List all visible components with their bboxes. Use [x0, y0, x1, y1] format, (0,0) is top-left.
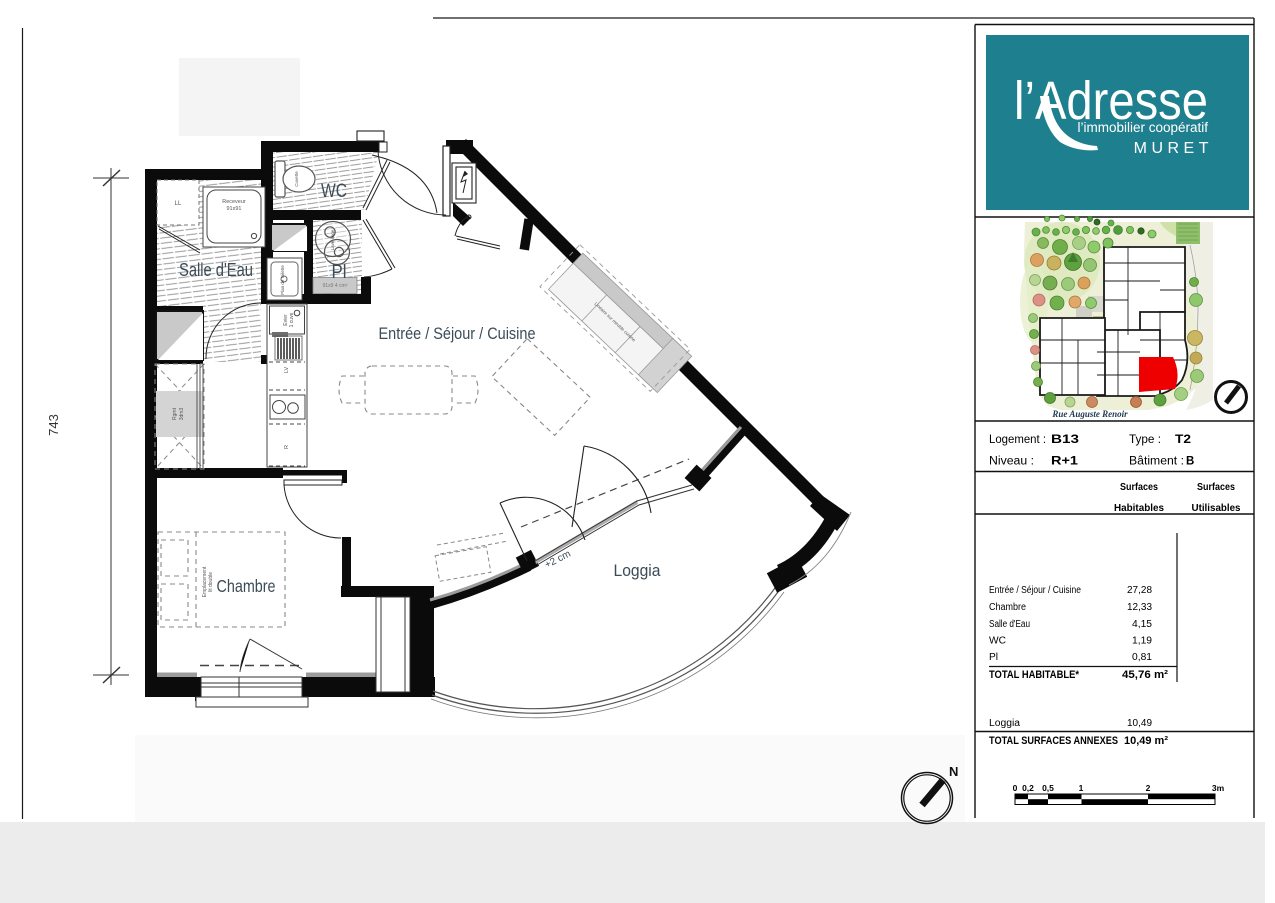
svg-text:0: 0: [1013, 783, 1018, 793]
svg-text:LV: LV: [284, 367, 290, 374]
svg-text:Entrée / Séjour / Cuisine: Entrée / Séjour / Cuisine: [989, 585, 1081, 596]
svg-text:WC: WC: [321, 181, 347, 202]
svg-text:3dm3: 3dm3: [179, 408, 185, 421]
svg-text:T2: T2: [1175, 434, 1191, 446]
svg-text:Chambre: Chambre: [989, 602, 1026, 613]
svg-text:B13: B13: [1051, 434, 1079, 446]
svg-text:10,49 m²: 10,49 m²: [1124, 735, 1168, 747]
svg-text:1,19: 1,19: [1132, 636, 1152, 647]
svg-text:Chambre: Chambre: [217, 576, 276, 596]
svg-text:l’immobilier coopératif: l’immobilier coopératif: [1077, 120, 1208, 135]
svg-text:Loggia: Loggia: [989, 718, 1020, 729]
svg-text:R+1: R+1: [1051, 456, 1079, 468]
svg-text:Receveur: Receveur: [222, 199, 246, 205]
svg-text:Bâtiment :: Bâtiment :: [1129, 456, 1184, 468]
svg-text:Utilisables: Utilisables: [1192, 502, 1241, 514]
svg-text:Salle d'Eau: Salle d'Eau: [989, 619, 1030, 630]
svg-text:3m: 3m: [1212, 783, 1225, 793]
svg-text:MURET: MURET: [1134, 140, 1213, 157]
svg-text:Logement :: Logement :: [989, 434, 1046, 446]
svg-text:0,5: 0,5: [1042, 783, 1054, 793]
svg-text:Loggia: Loggia: [614, 562, 662, 580]
svg-text:12,33: 12,33: [1127, 602, 1152, 613]
svg-text:Surfaces: Surfaces: [1197, 481, 1235, 493]
svg-text:B: B: [1186, 456, 1194, 468]
svg-text:Pl: Pl: [989, 652, 998, 663]
svg-text:Pl: Pl: [332, 262, 347, 283]
svg-text:1: 1: [1079, 783, 1084, 793]
svg-text:45,76 m²: 45,76 m²: [1122, 669, 1168, 681]
svg-text:743: 743: [46, 414, 61, 436]
svg-text:10,49: 10,49: [1127, 718, 1152, 729]
svg-text:TOTAL HABITABLE*: TOTAL HABITABLE*: [989, 669, 1080, 681]
svg-text:TOTAL SURFACES ANNEXES: TOTAL SURFACES ANNEXES: [989, 735, 1118, 747]
svg-text:Entrée / Séjour / Cuisine: Entrée / Séjour / Cuisine: [379, 325, 536, 343]
svg-text:2: 2: [1146, 783, 1151, 793]
svg-text:lit double: lit double: [208, 572, 214, 592]
svg-text:4,15: 4,15: [1132, 619, 1152, 630]
svg-text:Rgmt: Rgmt: [172, 407, 178, 420]
svg-text:Salle d'Eau: Salle d'Eau: [179, 260, 253, 280]
svg-text:1 cuve: 1 cuve: [289, 312, 295, 327]
svg-text:Surfaces: Surfaces: [1120, 481, 1158, 493]
svg-text:91x91: 91x91: [227, 206, 242, 212]
svg-text:Type :: Type :: [1129, 434, 1161, 446]
svg-text:Habitables: Habitables: [1114, 502, 1164, 514]
svg-text:LL: LL: [175, 201, 182, 207]
svg-text:27,28: 27,28: [1127, 585, 1152, 596]
svg-text:0,2: 0,2: [1022, 783, 1034, 793]
svg-text:Rue Auguste Renoir: Rue Auguste Renoir: [1051, 409, 1128, 419]
svg-text:WC: WC: [989, 636, 1006, 647]
svg-text:N: N: [949, 764, 958, 779]
svg-text:0,81: 0,81: [1132, 652, 1152, 663]
svg-text:Niveau :: Niveau :: [989, 456, 1034, 468]
svg-text:R: R: [284, 445, 290, 449]
svg-text:Lave-linge: Lave-linge: [330, 229, 335, 250]
svg-text:Cuvette: Cuvette: [294, 171, 299, 187]
svg-text:+2 cm: +2 cm: [543, 549, 573, 571]
svg-text:91x9 4 cm²: 91x9 4 cm²: [323, 283, 348, 289]
svg-text:Plan de toilette: Plan de toilette: [280, 265, 285, 295]
